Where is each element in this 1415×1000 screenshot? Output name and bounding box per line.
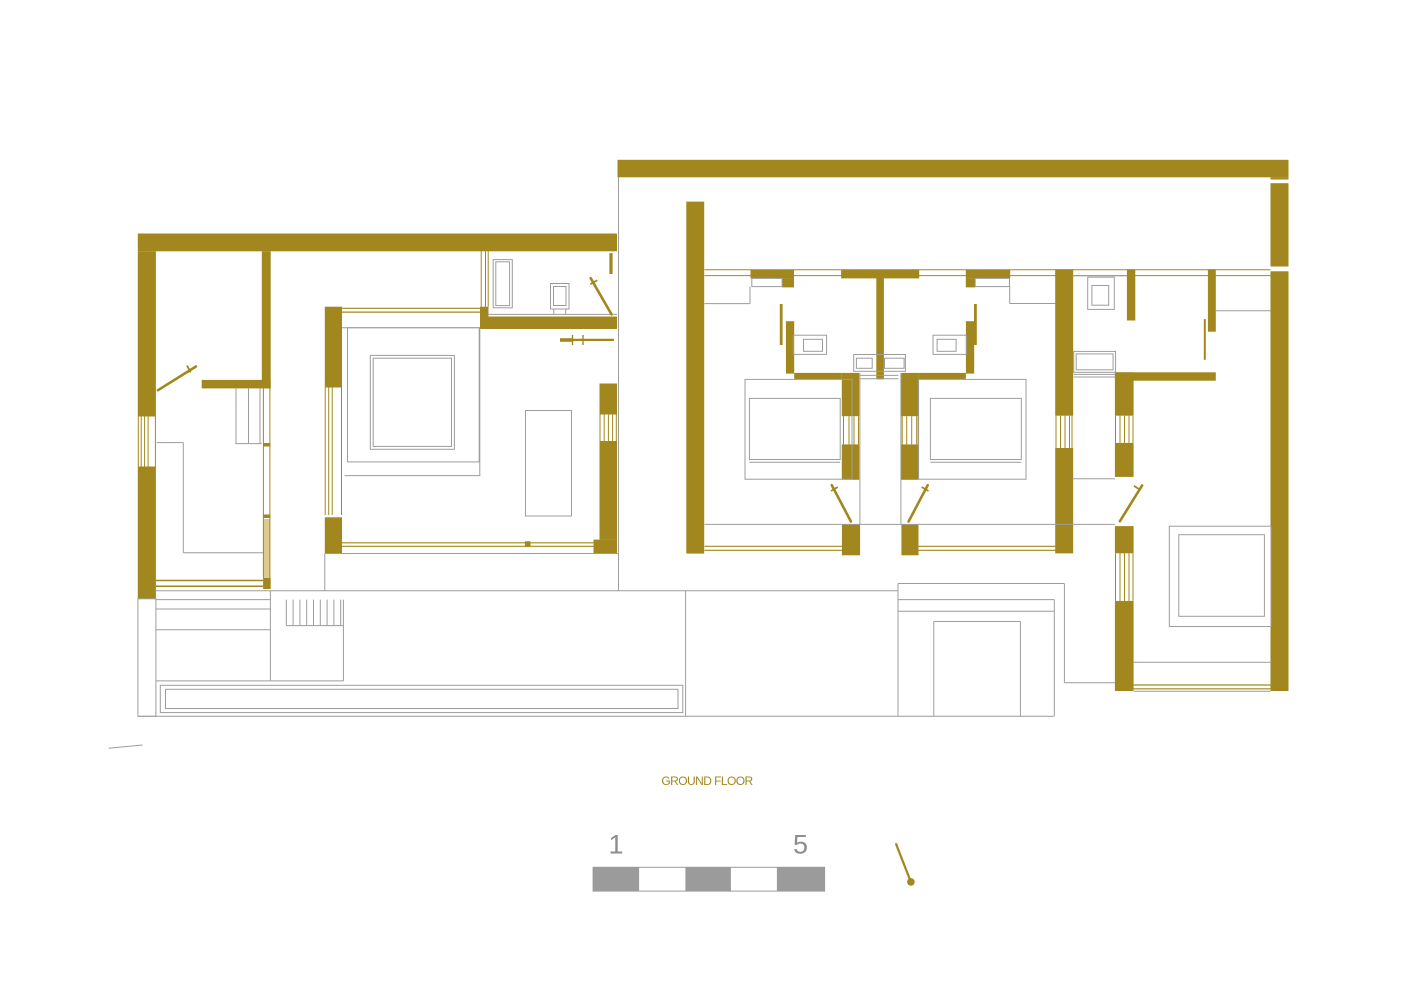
svg-text:5: 5	[793, 830, 808, 860]
svg-text:1: 1	[608, 830, 623, 860]
svg-text:GROUND FLOOR: GROUND FLOOR	[661, 774, 753, 788]
